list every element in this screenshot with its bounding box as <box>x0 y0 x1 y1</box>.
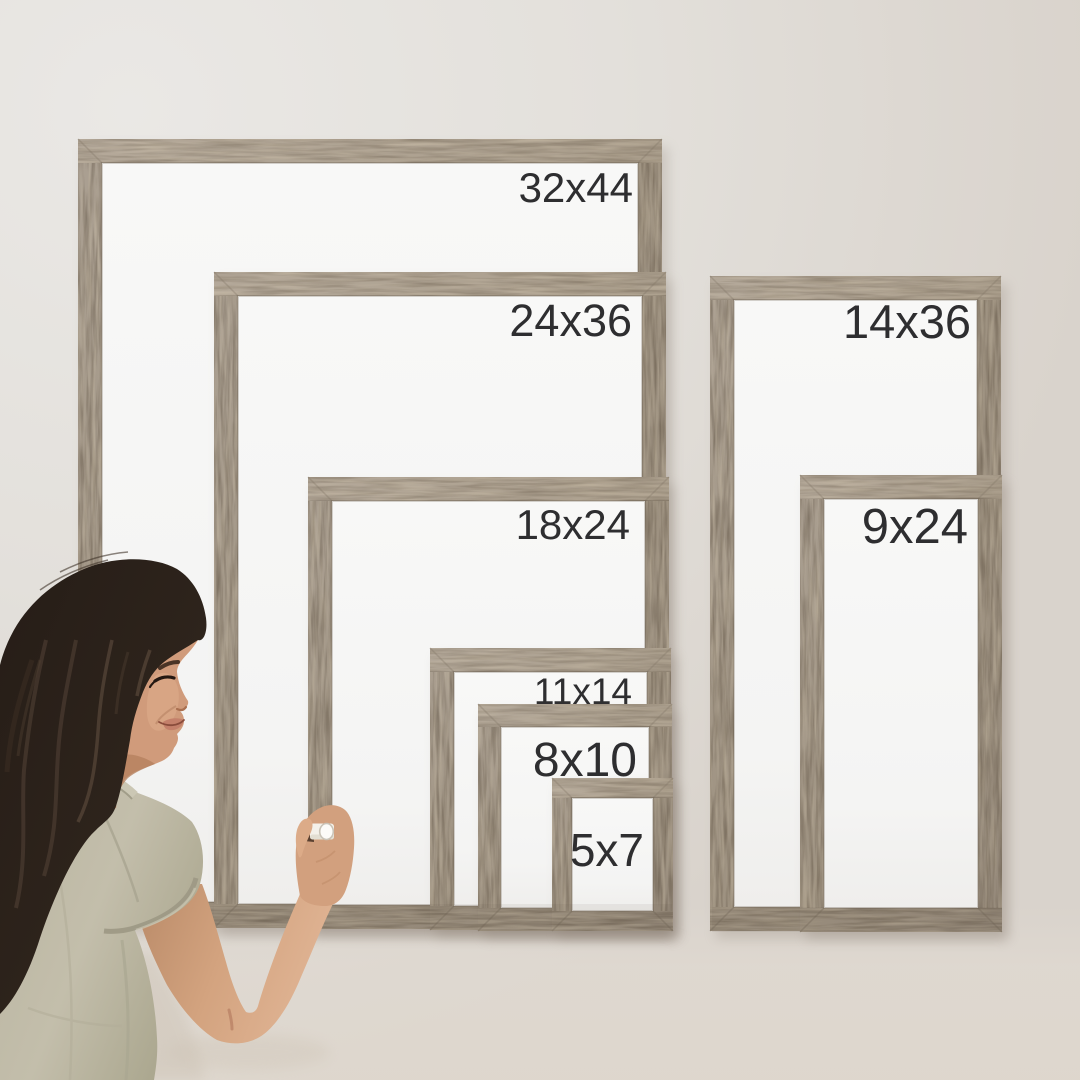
svg-text:24x36: 24x36 <box>509 295 632 346</box>
svg-text:5x7: 5x7 <box>570 824 644 876</box>
svg-text:9x24: 9x24 <box>862 500 968 554</box>
svg-text:32x44: 32x44 <box>519 164 633 211</box>
svg-text:18x24: 18x24 <box>516 501 630 548</box>
svg-text:14x36: 14x36 <box>843 295 971 348</box>
